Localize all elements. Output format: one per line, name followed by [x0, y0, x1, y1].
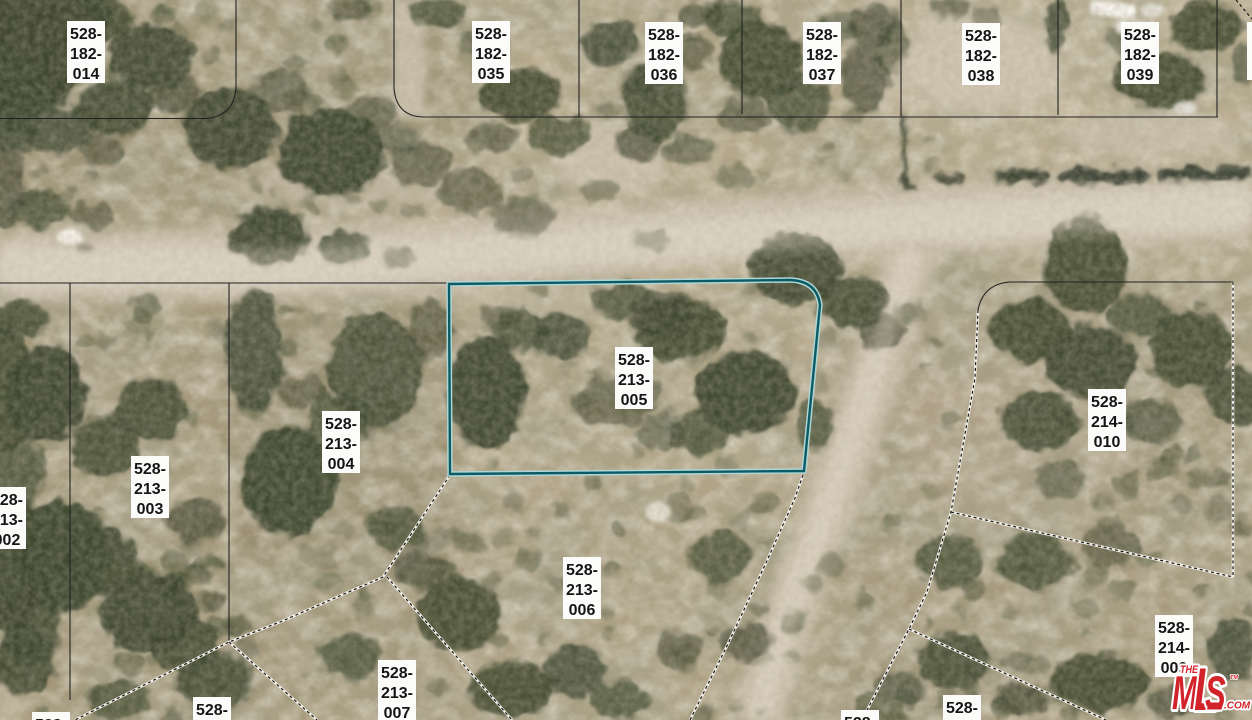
svg-text:528-: 528- — [325, 416, 357, 433]
svg-text:213-: 213- — [566, 582, 598, 599]
svg-text:213-: 213- — [0, 512, 23, 529]
svg-text:038: 038 — [968, 68, 995, 85]
svg-text:003: 003 — [137, 501, 164, 518]
svg-text:528-: 528- — [0, 492, 23, 509]
svg-text:S: S — [1205, 668, 1226, 720]
svg-text:182-: 182- — [965, 48, 997, 65]
svg-text:014: 014 — [73, 66, 100, 83]
svg-text:528-: 528- — [946, 700, 978, 717]
svg-text:039: 039 — [1127, 67, 1154, 84]
svg-text:.COM: .COM — [1224, 701, 1251, 712]
svg-text:528-: 528- — [70, 26, 102, 43]
svg-text:182-: 182- — [806, 47, 838, 64]
svg-text:528-: 528- — [381, 665, 413, 682]
svg-text:528-: 528- — [1091, 394, 1123, 411]
svg-text:528-: 528- — [566, 562, 598, 579]
svg-text:037: 037 — [809, 67, 836, 84]
svg-text:010: 010 — [1094, 434, 1121, 451]
svg-text:528-: 528- — [196, 702, 228, 719]
svg-text:528-: 528- — [618, 352, 650, 369]
svg-text:182-: 182- — [648, 47, 680, 64]
svg-text:005: 005 — [621, 392, 648, 409]
svg-text:182-: 182- — [1124, 47, 1156, 64]
svg-text:528-: 528- — [844, 715, 876, 720]
svg-text:528-: 528- — [134, 461, 166, 478]
svg-text:214-: 214- — [1091, 414, 1123, 431]
svg-text:213-: 213- — [381, 685, 413, 702]
svg-text:213-: 213- — [618, 372, 650, 389]
svg-text:182-: 182- — [475, 46, 507, 63]
svg-text:006: 006 — [569, 602, 596, 619]
svg-text:002: 002 — [0, 532, 20, 549]
svg-text:528-: 528- — [806, 27, 838, 44]
svg-text:182-: 182- — [70, 46, 102, 63]
svg-text:528-: 528- — [1158, 620, 1190, 637]
svg-text:036: 036 — [651, 67, 678, 84]
svg-text:528-: 528- — [965, 28, 997, 45]
svg-text:213-: 213- — [325, 436, 357, 453]
svg-text:528-: 528- — [1124, 27, 1156, 44]
svg-text:035: 035 — [478, 66, 505, 83]
svg-text:213-: 213- — [134, 481, 166, 498]
svg-text:528-: 528- — [648, 27, 680, 44]
svg-text:007: 007 — [384, 705, 411, 720]
svg-text:004: 004 — [328, 456, 355, 473]
svg-text:TM: TM — [1230, 675, 1238, 681]
svg-text:528-: 528- — [475, 26, 507, 43]
